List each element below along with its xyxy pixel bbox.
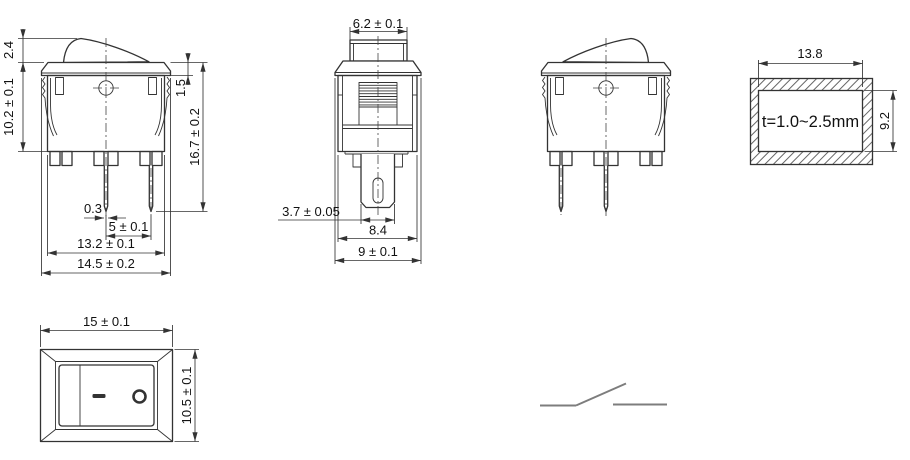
dim-body-height: 10.2 ± 0.1 xyxy=(1,78,16,136)
top-view-bezel xyxy=(41,350,173,442)
top-view: 15 ± 0.1 10.5 ± 0.1 xyxy=(41,314,200,442)
side-view: 6.2 ± 0.1 3.7 ± 0.05 8.4 9 ± 0.1 xyxy=(278,16,421,264)
dim-flange-width: 14.5 ± 0.2 xyxy=(77,256,135,271)
dim-top-height: 10.5 ± 0.1 xyxy=(179,367,194,425)
dim-total-height: 16.7 ± 0.2 xyxy=(187,108,202,166)
dim-flange-thickness: 1.5 xyxy=(173,79,188,97)
dim-body-width: 13.2 ± 0.1 xyxy=(77,236,135,251)
dim-terminal-width: 3.7 ± 0.05 xyxy=(282,204,340,219)
circuit-switch-arm xyxy=(576,384,626,406)
dim-cutout-height: 9.2 xyxy=(877,112,892,130)
side-switch-body xyxy=(338,76,417,152)
off-symbol xyxy=(134,391,146,403)
dim-cutout-width: 13.8 xyxy=(797,46,822,61)
front-view-mirrored xyxy=(542,38,671,216)
circuit-symbol xyxy=(540,384,667,406)
dim-pin-pitch: 5 ± 0.1 xyxy=(109,219,149,234)
panel-cutout-view: 13.8 9.2 t=1.0~2.5mm xyxy=(751,46,898,165)
panel-thickness-note: t=1.0~2.5mm xyxy=(762,113,859,131)
dim-pin-thickness: 0.3 xyxy=(84,201,102,216)
dim-rocker-height: 2.4 xyxy=(1,41,16,59)
front-view: 2.4 10.2 ± 0.1 1.5 16.7 ± 0.2 0.3 5 ± 0.… xyxy=(1,29,208,276)
dim-actuator-width: 6.2 ± 0.1 xyxy=(353,16,404,31)
top-view-dimension-lines xyxy=(41,325,200,442)
dim-body-depth: 8.4 xyxy=(369,223,387,238)
dim-flange-depth: 9 ± 0.1 xyxy=(358,244,398,259)
rocker-top-face xyxy=(59,365,154,426)
rocker-switch-drawing: 2.4 10.2 ± 0.1 1.5 16.7 ± 0.2 0.3 5 ± 0.… xyxy=(0,0,910,460)
on-symbol xyxy=(93,394,106,398)
dim-top-width: 15 ± 0.1 xyxy=(83,314,130,329)
rocker-opening-frame xyxy=(56,362,158,430)
technical-drawing-canvas: 2.4 10.2 ± 0.1 1.5 16.7 ± 0.2 0.3 5 ± 0.… xyxy=(0,0,910,460)
